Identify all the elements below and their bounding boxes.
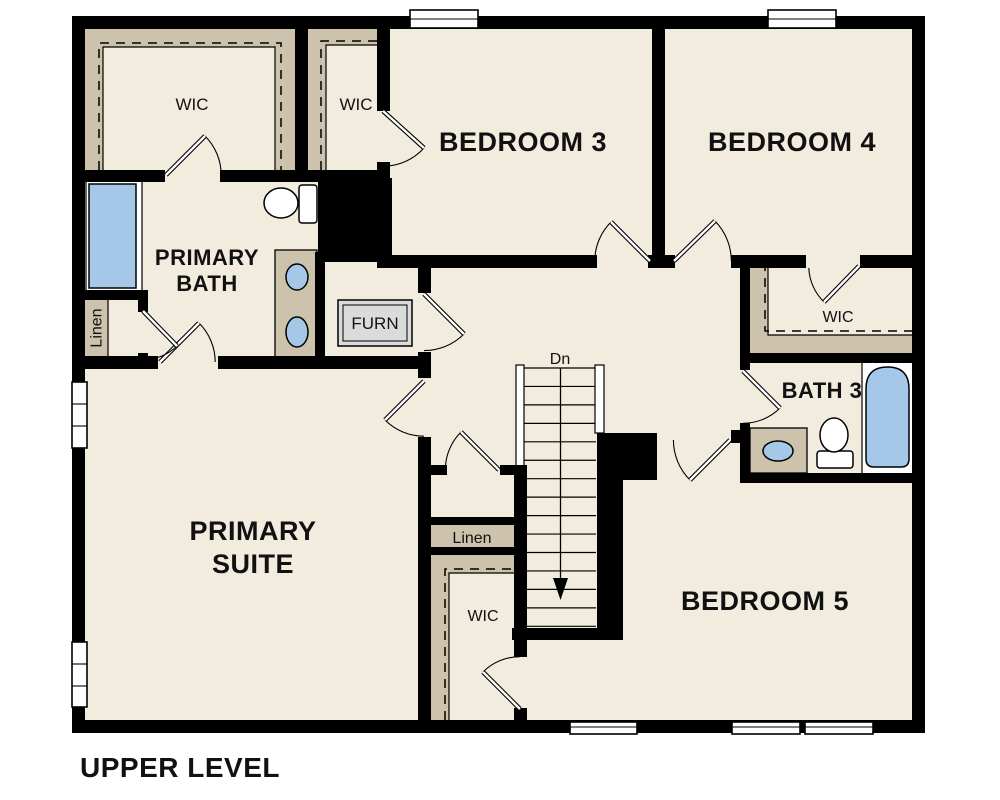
stair-rail-right: [595, 365, 604, 433]
wall: [315, 252, 325, 368]
wall: [740, 353, 912, 363]
room-label-bath3: BATH 3: [782, 378, 863, 403]
wall: [731, 430, 748, 443]
room-label-bed4-wic: WIC: [822, 309, 853, 326]
wall: [377, 29, 390, 111]
wall: [218, 356, 431, 369]
wall: [860, 255, 912, 268]
window: [570, 722, 637, 734]
wall: [431, 465, 447, 475]
window: [732, 722, 800, 734]
floor-plan-page: WIC WIC BEDROOM 3 BEDROOM 4 PRIMARY BATH…: [0, 0, 1000, 800]
shower: [89, 184, 136, 288]
wall: [648, 255, 675, 268]
wall: [418, 437, 431, 720]
room-label-primary-wic: WIC: [175, 95, 208, 114]
wall: [512, 628, 623, 640]
page-title: UPPER LEVEL: [80, 752, 280, 783]
room-label-bedroom5: BEDROOM 5: [681, 586, 849, 616]
room-label-linen-lower: Linen: [452, 530, 491, 547]
wall: [295, 29, 308, 182]
wall: [138, 290, 148, 312]
floor-plan-drawing: WIC WIC BEDROOM 3 BEDROOM 4 PRIMARY BATH…: [0, 0, 1000, 800]
room-label-bedroom3: BEDROOM 3: [439, 127, 607, 157]
wall: [652, 29, 665, 268]
linen-upper-floor: [108, 300, 138, 356]
stair-rail-left: [516, 365, 524, 467]
window: [768, 10, 836, 28]
room-label-primary-suite-2: SUITE: [212, 549, 294, 579]
toilet-bowl: [820, 418, 848, 452]
room-label-primary-bath-1: PRIMARY: [155, 245, 259, 270]
room-label-primary-suite-1: PRIMARY: [189, 516, 316, 546]
toilet-tank: [817, 451, 853, 468]
room-label-bed3-wic: WIC: [339, 95, 372, 114]
wall: [418, 268, 431, 293]
window: [805, 722, 873, 734]
window: [410, 10, 478, 28]
wall: [912, 16, 925, 733]
toilet-bowl: [264, 188, 298, 218]
wall: [431, 547, 514, 555]
wall: [72, 16, 85, 733]
room-label-furnace: FURN: [351, 314, 398, 333]
wall: [431, 517, 514, 525]
sink-icon: [286, 264, 308, 290]
wall: [740, 473, 912, 483]
wall: [85, 170, 165, 182]
window: [72, 382, 87, 448]
wall: [377, 255, 597, 268]
stairs-down-label: Dn: [550, 351, 570, 368]
room-label-primary-bath-2: BATH: [176, 271, 237, 296]
hall-wic-floor: [449, 573, 514, 720]
room-label-linen-upper: Linen: [89, 308, 106, 347]
sink-icon: [763, 441, 793, 461]
window: [72, 642, 87, 707]
sink-icon: [286, 317, 308, 347]
chase: [598, 433, 657, 480]
wall: [514, 708, 527, 720]
wall: [138, 353, 148, 369]
toilet-tank: [299, 185, 317, 223]
bathtub: [866, 367, 909, 467]
room-label-hall-wic: WIC: [467, 608, 498, 625]
room-label-bedroom4: BEDROOM 4: [708, 127, 876, 157]
wall: [418, 352, 431, 378]
chase: [318, 178, 392, 262]
